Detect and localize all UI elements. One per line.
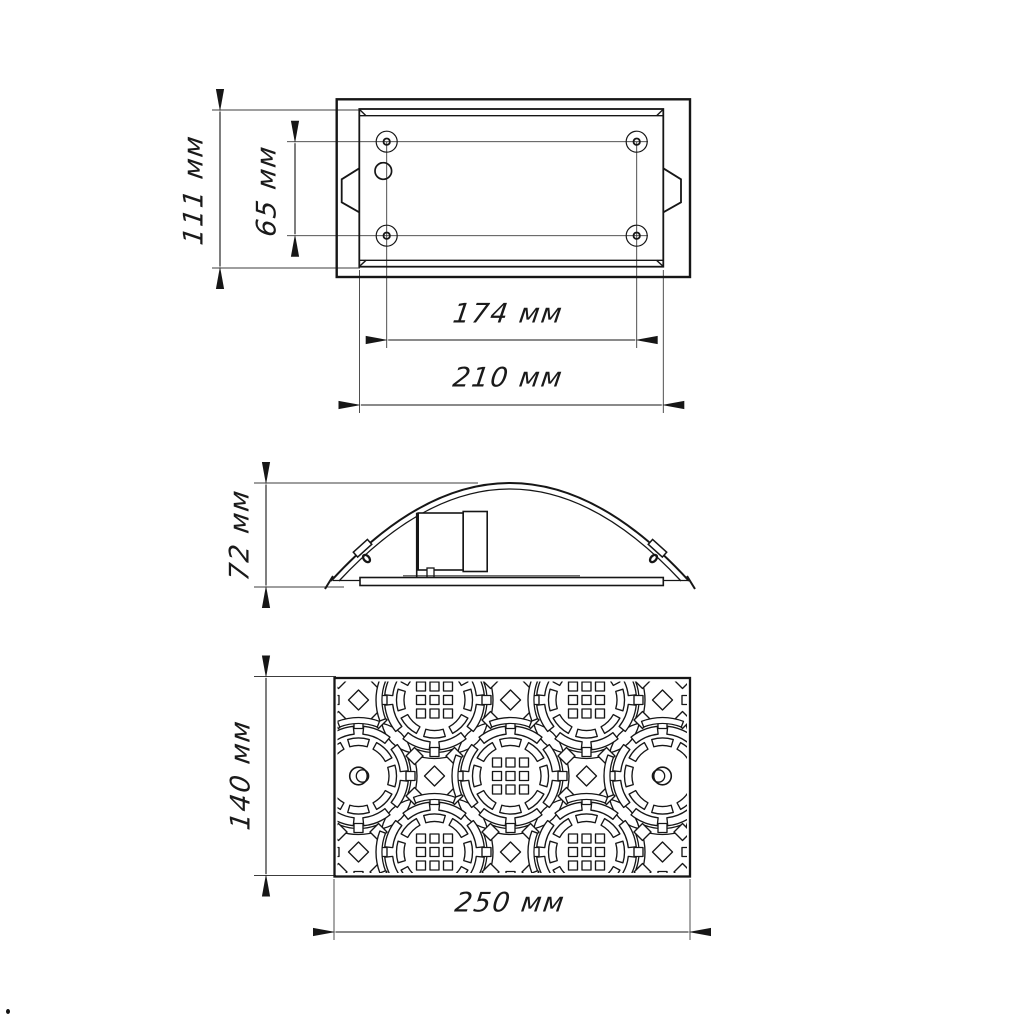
top-view-plate-flange-lines xyxy=(359,109,663,266)
pattern-shape xyxy=(712,755,721,797)
pattern-shape xyxy=(417,848,426,857)
pattern-shape xyxy=(309,745,326,772)
pattern-shape xyxy=(309,780,326,807)
pattern-shape xyxy=(430,696,439,705)
pattern-shape xyxy=(444,709,453,718)
pattern-shape xyxy=(482,696,491,705)
pattern-shape xyxy=(388,765,397,787)
pattern-shape xyxy=(354,824,363,833)
pattern-shape xyxy=(566,901,608,910)
pattern-shape xyxy=(430,834,439,843)
top-view-cable-hole xyxy=(375,163,392,180)
pattern-shape xyxy=(569,709,578,718)
pattern-shape xyxy=(425,766,445,786)
pattern-shape xyxy=(403,650,430,667)
grille-ornament-pattern xyxy=(300,642,721,911)
dim-label-top-width: 210 мм xyxy=(451,365,565,392)
pattern-shape xyxy=(658,672,667,681)
pattern-shape xyxy=(576,662,598,671)
pattern-shape xyxy=(520,785,529,794)
pattern-shape xyxy=(569,696,578,705)
pattern-shape xyxy=(424,881,446,890)
pattern-shape xyxy=(464,841,473,863)
pattern-shape xyxy=(424,814,446,823)
pattern-shape xyxy=(549,689,558,711)
pattern-shape xyxy=(417,709,426,718)
dim-label-top-height: 111 мм xyxy=(181,133,208,247)
pattern-shape xyxy=(506,758,515,767)
top-view-dimension-lines xyxy=(220,112,662,406)
pattern-shape xyxy=(582,748,591,757)
drawing-svg xyxy=(0,0,1024,1024)
pattern-shape xyxy=(506,785,515,794)
pattern-shape xyxy=(616,689,625,711)
pattern-shape xyxy=(582,709,591,718)
top-view-mounting-holes xyxy=(376,131,647,246)
pattern-shape xyxy=(439,650,466,667)
pattern-shape xyxy=(506,772,515,781)
pattern-shape xyxy=(501,842,521,862)
pattern-shape xyxy=(414,642,456,651)
pattern-shape xyxy=(493,772,502,781)
pattern-shape xyxy=(501,690,521,710)
pattern-shape xyxy=(348,738,370,747)
pattern-shape xyxy=(558,772,567,781)
pattern-shape xyxy=(349,690,369,710)
dim-label-hole-spacing-vertical: 65 мм xyxy=(254,144,281,239)
side-view-dome-right-tip xyxy=(687,576,695,589)
pattern-shape xyxy=(555,650,582,667)
pattern-shape xyxy=(596,682,605,691)
pattern-shape xyxy=(591,885,618,902)
pattern-shape xyxy=(596,696,605,705)
pattern-shape xyxy=(577,766,597,786)
pattern-shape xyxy=(424,662,446,671)
pattern-shape xyxy=(576,814,598,823)
pattern-shape xyxy=(493,785,502,794)
dim-label-side-height: 72 мм xyxy=(227,488,254,583)
pattern-shape xyxy=(576,881,598,890)
pattern-shape xyxy=(634,696,643,705)
pattern-shape xyxy=(430,861,439,870)
pattern-shape xyxy=(430,848,439,857)
pattern-shape xyxy=(616,841,625,863)
pattern-shape xyxy=(596,709,605,718)
pattern-shape xyxy=(625,765,634,787)
pattern-shape xyxy=(652,738,674,747)
pattern-shape xyxy=(658,824,667,833)
top-view-right-tab xyxy=(663,168,681,212)
pattern-shape xyxy=(444,834,453,843)
pattern-shape xyxy=(472,765,481,787)
pattern-shape xyxy=(396,841,405,863)
pattern-shape xyxy=(695,745,712,772)
pattern-shape xyxy=(406,772,415,781)
pattern-shape xyxy=(349,842,369,862)
pattern-shape xyxy=(506,672,515,681)
pattern-shape xyxy=(482,848,491,857)
pattern-shape xyxy=(695,780,712,807)
pattern-shape xyxy=(444,682,453,691)
pattern-shape xyxy=(354,672,363,681)
pattern-shape xyxy=(493,758,502,767)
pattern-shape xyxy=(681,643,720,682)
pattern-shape xyxy=(569,861,578,870)
pattern-shape xyxy=(653,690,673,710)
pattern-shape xyxy=(396,689,405,711)
pattern-shape xyxy=(596,848,605,857)
pattern-shape xyxy=(348,805,370,814)
pattern-shape xyxy=(629,791,648,810)
pattern-shape xyxy=(540,765,549,787)
pattern-shape xyxy=(520,772,529,781)
side-view-dome-outer xyxy=(331,483,689,581)
pattern-shape xyxy=(301,643,340,682)
pattern-shape xyxy=(500,738,522,747)
pattern-shape xyxy=(373,743,392,762)
pattern-shape xyxy=(500,805,522,814)
top-view-mounting-plate xyxy=(359,109,663,267)
pattern-shape xyxy=(582,834,591,843)
pattern-shape xyxy=(430,748,439,757)
pattern-shape xyxy=(576,729,598,738)
pattern-shape xyxy=(674,864,691,881)
side-view xyxy=(254,483,695,589)
pattern-shape xyxy=(569,682,578,691)
pattern-shape xyxy=(596,861,605,870)
pattern-shape xyxy=(634,848,643,857)
pattern-shape xyxy=(529,643,568,682)
pattern-shape xyxy=(417,696,426,705)
side-view-lamp-socket xyxy=(403,512,580,578)
pattern-shape xyxy=(424,729,446,738)
pattern-shape xyxy=(373,791,392,810)
dim-label-grille-width: 250 мм xyxy=(453,890,567,917)
pattern-shape xyxy=(582,848,591,857)
technical-drawing-canvas: 111 мм 65 мм 174 мм 210 мм 72 мм 140 мм … xyxy=(0,0,1024,1024)
pattern-shape xyxy=(414,901,456,910)
scan-artifact-dot xyxy=(6,1009,10,1014)
pattern-shape xyxy=(430,709,439,718)
pattern-shape xyxy=(417,834,426,843)
pattern-shape xyxy=(653,842,673,862)
pattern-shape xyxy=(330,864,347,881)
dim-label-grille-height: 140 мм xyxy=(228,718,255,832)
pattern-shape xyxy=(430,682,439,691)
pattern-shape xyxy=(506,824,515,833)
pattern-shape xyxy=(569,848,578,857)
pattern-shape xyxy=(674,672,691,689)
pattern-shape xyxy=(377,643,416,682)
pattern-shape xyxy=(582,682,591,691)
pattern-shape xyxy=(549,841,558,863)
pattern-shape xyxy=(300,755,309,797)
pattern-shape xyxy=(652,805,674,814)
pattern-shape xyxy=(692,765,701,787)
pattern-shape xyxy=(417,861,426,870)
side-view-dome-inner xyxy=(339,489,681,581)
pattern-shape xyxy=(596,834,605,843)
pattern-shape xyxy=(629,743,648,762)
pattern-shape xyxy=(464,689,473,711)
side-view-base-plate xyxy=(360,578,663,586)
pattern-shape xyxy=(320,765,329,787)
pattern-shape xyxy=(417,682,426,691)
pattern-shape xyxy=(677,791,696,810)
pattern-shape xyxy=(582,696,591,705)
pattern-shape xyxy=(569,834,578,843)
pattern-shape xyxy=(444,848,453,857)
pattern-shape xyxy=(582,861,591,870)
pattern-shape xyxy=(566,642,608,651)
pattern-shape xyxy=(453,643,492,682)
pattern-shape xyxy=(520,758,529,767)
dim-label-hole-spacing-horizontal: 174 мм xyxy=(451,301,565,328)
pattern-shape xyxy=(605,643,644,682)
pattern-shape xyxy=(677,743,696,762)
top-view xyxy=(212,99,690,413)
pattern-shape xyxy=(591,650,618,667)
pattern-shape xyxy=(403,885,430,902)
top-view-left-tab xyxy=(342,168,360,212)
pattern-shape xyxy=(330,672,347,689)
pattern-shape xyxy=(444,861,453,870)
pattern-shape xyxy=(444,696,453,705)
